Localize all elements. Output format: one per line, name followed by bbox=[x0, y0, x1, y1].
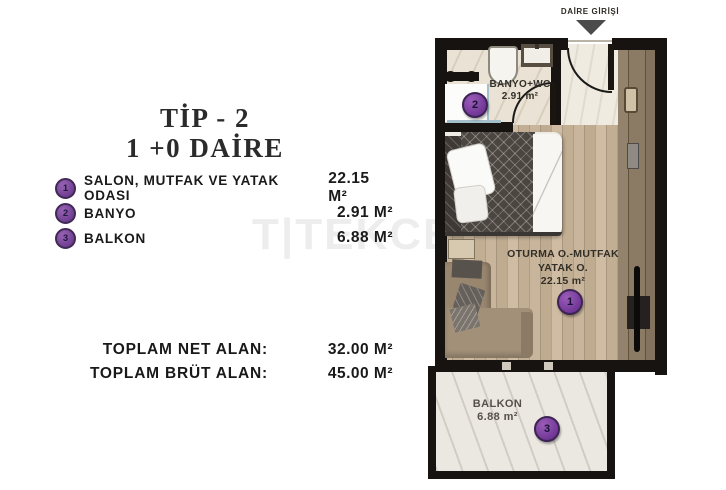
total-net-row: TOPLAM NET ALAN: 32.00 M² bbox=[55, 341, 393, 359]
living-room-label: OTURMA O.-MUTFAK YATAK O. 22.15 m² bbox=[500, 248, 626, 289]
legend-row-banyo: 2 BANYO 2.91 M² bbox=[55, 204, 393, 222]
room-legend: 1 SALON, MUTFAK VE YATAK ODASI 22.15 M² … bbox=[55, 179, 393, 254]
bathroom-name: BANYO+WC bbox=[480, 79, 560, 91]
legend-label-salon: SALON, MUTFAK VE YATAK ODASI bbox=[84, 173, 328, 203]
plan-title: TİP - 2 1 +0 DAİRE bbox=[60, 103, 350, 163]
legend-badge-1: 1 bbox=[55, 178, 76, 199]
living-area: 22.15 m² bbox=[500, 275, 626, 289]
balcony-name: BALKON bbox=[455, 398, 540, 411]
total-net-value: 32.00 M² bbox=[268, 341, 393, 359]
legend-value-banyo: 2.91 M² bbox=[337, 204, 393, 222]
tv-screen bbox=[634, 266, 640, 352]
area-totals: TOPLAM NET ALAN: 32.00 M² TOPLAM BRÜT AL… bbox=[55, 341, 393, 389]
legend-badge-3: 3 bbox=[55, 228, 76, 249]
legend-row-balkon: 3 BALKON 6.88 M² bbox=[55, 229, 393, 247]
badge-1: 1 bbox=[557, 289, 583, 315]
badge-2: 2 bbox=[462, 92, 488, 118]
bathroom-area: 2.91 m² bbox=[480, 91, 560, 103]
living-name-line1: OTURMA O.-MUTFAK bbox=[500, 248, 626, 262]
balcony-area: 6.88 m² bbox=[455, 411, 540, 424]
total-brut-label: TOPLAM BRÜT ALAN: bbox=[55, 365, 268, 383]
shower-glass bbox=[447, 120, 501, 123]
balcony-label: BALKON 6.88 m² bbox=[455, 398, 540, 424]
total-brut-row: TOPLAM BRÜT ALAN: 45.00 M² bbox=[55, 365, 393, 383]
entrance-arrow-icon bbox=[576, 20, 606, 35]
legend-row-salon: 1 SALON, MUTFAK VE YATAK ODASI 22.15 M² bbox=[55, 179, 393, 197]
entrance-label: DAİRE GİRİŞİ bbox=[545, 7, 635, 16]
badge-3: 3 bbox=[534, 416, 560, 442]
sofa-cushion bbox=[452, 259, 483, 279]
legend-badge-2: 2 bbox=[55, 203, 76, 224]
legend-label-balkon: BALKON bbox=[84, 231, 146, 246]
sofa-armrest bbox=[521, 312, 533, 356]
legend-value-salon: 22.15 M² bbox=[328, 170, 393, 206]
legend-label-banyo: BANYO bbox=[84, 206, 136, 221]
plan-title-line2: 1 +0 DAİRE bbox=[60, 133, 350, 163]
total-brut-value: 45.00 M² bbox=[268, 365, 393, 383]
legend-value-balkon: 6.88 M² bbox=[337, 229, 393, 247]
total-net-label: TOPLAM NET ALAN: bbox=[55, 341, 268, 359]
bathroom-label: BANYO+WC 2.91 m² bbox=[480, 79, 560, 103]
living-name-line2: YATAK O. bbox=[500, 262, 626, 276]
plan-title-line1: TİP - 2 bbox=[60, 103, 350, 133]
floorplan-page: { "colors": { "badge_purple": "#7a4596",… bbox=[0, 0, 726, 485]
